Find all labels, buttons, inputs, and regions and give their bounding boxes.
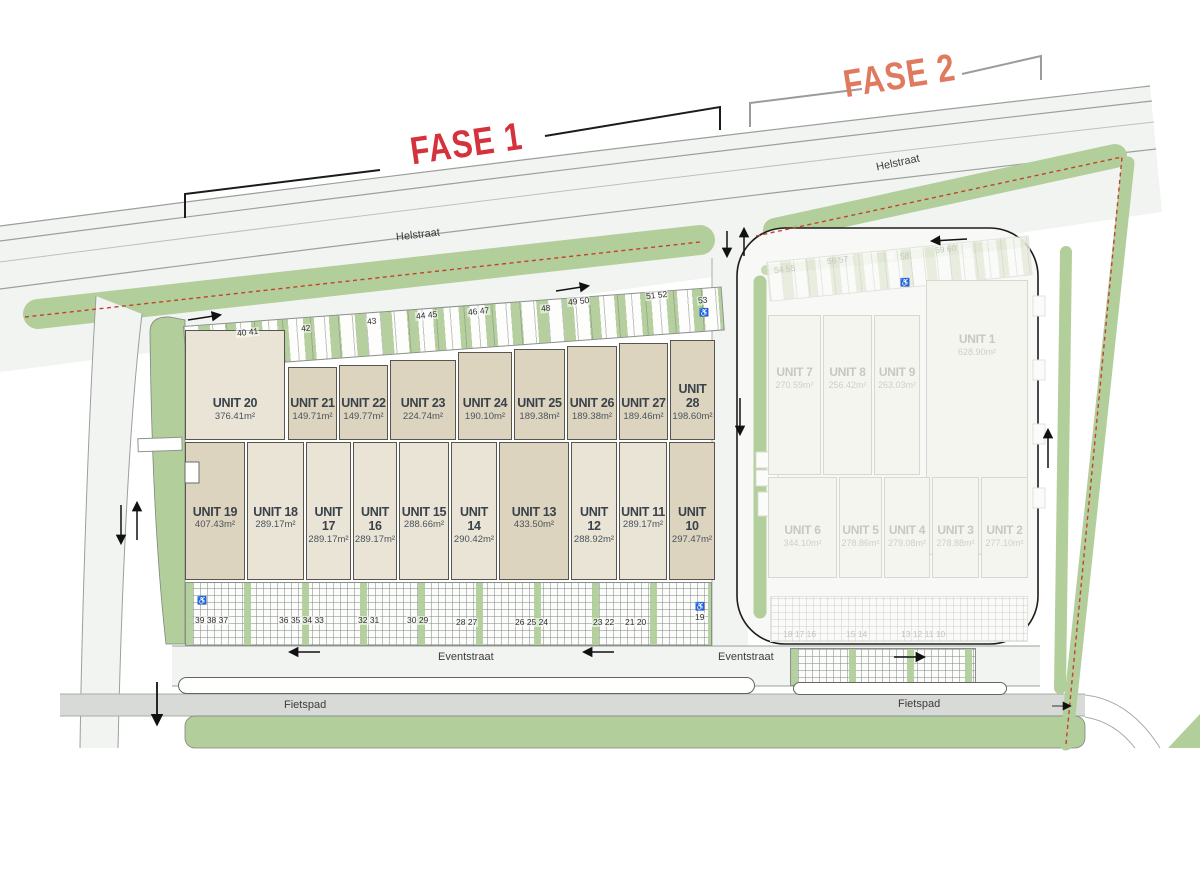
unit-3-area: 278.88m² (936, 538, 974, 550)
unit-22-block: UNIT 22 149.77m² (339, 365, 388, 440)
unit-2-name: UNIT 2 (986, 524, 1022, 538)
unit-23-block: UNIT 23 224.74m² (390, 360, 456, 440)
unit-16-area: 289.17m² (355, 534, 395, 546)
parking-group-32-31: 32 31 (357, 616, 380, 625)
disabled-parking-icon: ♿ (699, 309, 709, 317)
parking-group-53: 53 (697, 295, 709, 305)
unit-10-area: 297.47m² (672, 534, 712, 546)
unit-27-area: 189.46m² (623, 411, 663, 423)
unit-13-area: 433.50m² (514, 519, 554, 531)
unit-24-name: UNIT 24 (463, 396, 507, 410)
parking-group-23-22: 23 22 (592, 618, 615, 627)
unit-19-block: UNIT 19 407.43m² (185, 442, 245, 580)
unit-28-area: 198.60m² (672, 411, 712, 423)
boundary-green-strip (1066, 163, 1128, 744)
eventstraat-label-right: Eventstraat (718, 652, 774, 663)
unit-4-block: UNIT 4 279.08m² (884, 477, 930, 578)
unit-6-area: 344.10m² (783, 538, 821, 550)
fase1-median-pill (178, 677, 755, 694)
unit-10-name: UNIT 10 (670, 505, 714, 534)
unit-8-area: 256.42m² (828, 380, 866, 392)
parking-group-21-20: 21 20 (624, 618, 647, 627)
unit-13-name: UNIT 13 (512, 505, 556, 519)
unit-11-name: UNIT 11 (621, 505, 665, 519)
unit-10-block: UNIT 10 297.47m² (669, 442, 715, 580)
green-wedge-left (150, 317, 185, 644)
unit-24-block: UNIT 24 190.10m² (458, 352, 512, 440)
unit-11-area: 289.17m² (623, 519, 663, 531)
disabled-parking-icon: ♿ (900, 279, 910, 287)
unit-21-block: UNIT 21 149.71m² (288, 367, 337, 440)
parking-group-43: 43 (366, 316, 378, 326)
unit-9-area: 263.03m² (878, 380, 916, 392)
unit-8-block: UNIT 8 256.42m² (823, 315, 872, 475)
fietspad-label-right: Fietspad (898, 699, 940, 710)
unit-25-name: UNIT 25 (517, 396, 561, 410)
unit-14-area: 290.42m² (454, 534, 494, 546)
site-plan: UNIT 20 376.41m² UNIT 21 149.71m² UNIT 2… (0, 0, 1200, 872)
unit-22-name: UNIT 22 (341, 396, 385, 410)
fase2-median-pill (793, 682, 1007, 695)
parking-group-58: 58 (899, 251, 911, 261)
unit-20-name: UNIT 20 (213, 396, 257, 410)
eventstraat-label-left: Eventstraat (438, 652, 494, 663)
unit-18-area: 289.17m² (255, 519, 295, 531)
fietspad-label-left: Fietspad (284, 700, 326, 711)
unit-23-area: 224.74m² (403, 411, 443, 423)
parking-group-18-16: 18 17 16 (782, 630, 817, 639)
unit-3-name: UNIT 3 (937, 524, 973, 538)
unit-6-block: UNIT 6 344.10m² (768, 477, 837, 578)
unit-24-area: 190.10m² (465, 411, 505, 423)
unit-27-name: UNIT 27 (621, 396, 665, 410)
parking-group-49-50: 49 50 (567, 296, 591, 307)
unit-9-name: UNIT 9 (879, 366, 915, 380)
unit-28-block: UNIT 28 198.60m² (670, 340, 715, 440)
unit-2-block: UNIT 2 277.10m² (981, 477, 1028, 578)
unit-16-name: UNIT 16 (354, 505, 396, 534)
left-road (80, 296, 142, 748)
unit-9-block: UNIT 9 263.03m² (874, 315, 920, 475)
unit-7-name: UNIT 7 (776, 366, 812, 380)
parking-group-48: 48 (540, 303, 552, 313)
unit-17-area: 289.17m² (308, 534, 348, 546)
disabled-parking-icon: ♿ (197, 597, 207, 605)
unit-17-name: UNIT 17 (307, 505, 350, 534)
unit-21-area: 149.71m² (292, 411, 332, 423)
unit-11-block: UNIT 11 289.17m² (619, 442, 667, 580)
fase1-parking-grid (185, 582, 712, 646)
unit-25-area: 189.38m² (519, 411, 559, 423)
unit-15-block: UNIT 15 288.66m² (399, 442, 449, 580)
unit-19-area: 407.43m² (195, 519, 235, 531)
parking-group-26-24: 26 25 24 (514, 618, 549, 627)
unit-7-block: UNIT 7 270.59m² (768, 315, 821, 475)
parking-group-19: 19 (694, 613, 705, 622)
unit-26-block: UNIT 26 189.38m² (567, 346, 617, 440)
unit-25-block: UNIT 25 189.38m² (514, 349, 565, 440)
unit-21-name: UNIT 21 (290, 396, 334, 410)
parking-group-39-37: 39 38 37 (194, 616, 229, 625)
unit-15-name: UNIT 15 (402, 505, 446, 519)
unit-7-area: 270.59m² (775, 380, 813, 392)
unit-26-area: 189.38m² (572, 411, 612, 423)
unit-17-block: UNIT 17 289.17m² (306, 442, 351, 580)
parking-group-51-52: 51 52 (645, 290, 669, 301)
unit-5-block: UNIT 5 278.86m² (839, 477, 882, 578)
fase2-parking-grid (790, 648, 976, 686)
unit-12-name: UNIT 12 (572, 505, 616, 534)
unit-14-block: UNIT 14 290.42m² (451, 442, 497, 580)
unit-22-area: 149.77m² (343, 411, 383, 423)
unit-16-block: UNIT 16 289.17m² (353, 442, 397, 580)
green-corner (1168, 714, 1200, 748)
unit-20-area: 376.41m² (215, 411, 255, 423)
unit-6-name: UNIT 6 (784, 524, 820, 538)
parking-group-40-41: 40 41 (236, 327, 260, 338)
unit-2-area: 277.10m² (985, 538, 1023, 550)
parking-group-42: 42 (300, 323, 312, 333)
green-band-bottom (185, 716, 1085, 748)
unit-3-block: UNIT 3 278.88m² (932, 477, 979, 578)
unit-8-name: UNIT 8 (829, 366, 865, 380)
disabled-parking-icon: ♿ (695, 603, 705, 611)
unit-5-area: 278.86m² (841, 538, 879, 550)
unit-28-name: UNIT 28 (671, 382, 714, 411)
unit-18-name: UNIT 18 (253, 505, 297, 519)
parking-group-30-29: 30 29 (406, 616, 429, 625)
unit-23-name: UNIT 23 (401, 396, 445, 410)
unit-5-name: UNIT 5 (842, 524, 878, 538)
unit-19-name: UNIT 19 (193, 505, 237, 519)
unit-14-name: UNIT 14 (452, 505, 496, 534)
green-strip-right (1060, 252, 1066, 688)
parking-group-36-33: 36 35 34 33 (278, 616, 325, 625)
unit-13-block: UNIT 13 433.50m² (499, 442, 569, 580)
unit-20-block: UNIT 20 376.41m² (185, 330, 285, 440)
unit-27-block: UNIT 27 189.46m² (619, 343, 668, 440)
unit-15-area: 288.66m² (404, 519, 444, 531)
unit-12-area: 288.92m² (574, 534, 614, 546)
unit-18-block: UNIT 18 289.17m² (247, 442, 304, 580)
parking-group-44-45: 44 45 (415, 310, 439, 321)
parking-group-15-14: 15 14 (845, 630, 868, 639)
unit-26-name: UNIT 26 (570, 396, 614, 410)
parking-group-28-27: 28 27 (455, 618, 478, 627)
unit-4-area: 279.08m² (888, 538, 926, 550)
parking-group-13-10: 13 12 11 10 (900, 630, 946, 639)
unit-1-area: 628.90m² (958, 347, 996, 359)
unit-1-name: UNIT 1 (959, 333, 995, 347)
unit-4-name: UNIT 4 (889, 524, 925, 538)
unit-12-block: UNIT 12 288.92m² (571, 442, 617, 580)
parking-group-46-47: 46 47 (467, 306, 491, 317)
